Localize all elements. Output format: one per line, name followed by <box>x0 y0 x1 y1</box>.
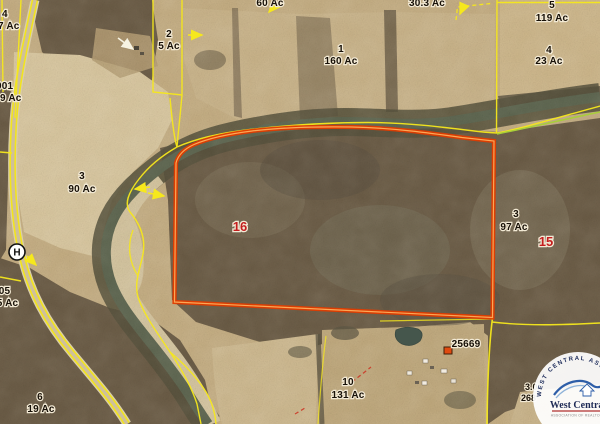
label-p2-ac: 5 Ac <box>158 41 180 52</box>
label-001: 001 <box>0 81 14 92</box>
label-p10-num: 10 <box>342 377 354 388</box>
label-001-ac: 9 Ac <box>0 93 22 104</box>
label-p1-ac: 160 Ac <box>324 56 357 67</box>
label-105: 105 <box>0 286 11 297</box>
label-60ac: 60 Ac <box>256 0 284 9</box>
label-r3-num: 3 <box>513 209 519 220</box>
label-p10-ac: 131 Ac <box>331 390 364 401</box>
label-105-ac: 55 Ac <box>0 298 19 309</box>
terrain-texture <box>0 0 600 424</box>
route-H-label: H <box>13 248 20 259</box>
section-15-label: 15 <box>539 234 553 249</box>
label-p3-ac: 90 Ac <box>68 184 96 195</box>
aerial-parcel-map[interactable]: H 60 Ac 30.3 Ac 4 7 Ac 001 9 Ac 2 5 Ac 1… <box>0 0 600 424</box>
label-p2-num: 2 <box>166 29 172 40</box>
label-30-3ac: 30.3 Ac <box>409 0 445 9</box>
label-p6-num: 6 <box>37 392 43 403</box>
label-r3-ac: 97 Ac <box>500 222 528 233</box>
label-p3-num: 3 <box>79 171 85 182</box>
section-16-label: 16 <box>233 219 247 234</box>
label-p5-num: 5 <box>549 0 555 11</box>
label-p4-ac: 23 Ac <box>535 56 563 67</box>
route-H-shield: H <box>9 244 25 260</box>
label-p6-ac: 19 Ac <box>27 404 55 415</box>
label-tl-num: 4 <box>2 9 8 20</box>
logo-name: West Central <box>550 400 600 411</box>
label-p1-num: 1 <box>338 44 344 55</box>
label-tl-ac: 7 Ac <box>0 21 20 32</box>
label-address: 25669 <box>452 339 481 350</box>
label-p4-num: 4 <box>546 45 552 56</box>
logo-sub-text: ASSOCIATION OF REALTORS <box>551 414 600 418</box>
label-p5-ac: 119 Ac <box>536 13 569 24</box>
